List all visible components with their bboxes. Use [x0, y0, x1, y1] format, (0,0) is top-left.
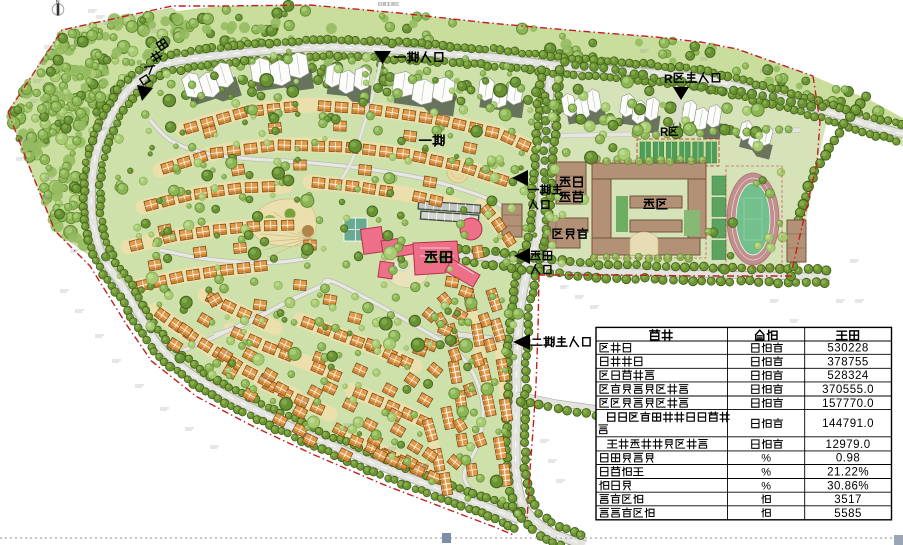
svg-text:N: N: [56, 0, 60, 6]
svg-text:12979.0: 12979.0: [826, 439, 871, 451]
svg-text:R: R: [664, 72, 673, 86]
svg-text:528324: 528324: [827, 370, 868, 382]
svg-text:370555.0: 370555.0: [822, 384, 874, 396]
svg-text:%: %: [761, 467, 771, 479]
svg-text:30.86%: 30.86%: [827, 480, 869, 492]
svg-text:0.98: 0.98: [836, 453, 860, 465]
svg-text:%: %: [761, 453, 771, 465]
svg-text:21.22%: 21.22%: [827, 467, 869, 479]
svg-text:378755: 378755: [827, 356, 868, 368]
svg-text:157770.0: 157770.0: [822, 398, 874, 410]
svg-text:530228: 530228: [827, 343, 868, 355]
svg-text:3517: 3517: [834, 494, 862, 506]
svg-text:R: R: [660, 127, 669, 139]
svg-text:%: %: [761, 480, 771, 492]
svg-text:5585: 5585: [834, 508, 862, 520]
svg-text:144791.0: 144791.0: [822, 418, 874, 430]
